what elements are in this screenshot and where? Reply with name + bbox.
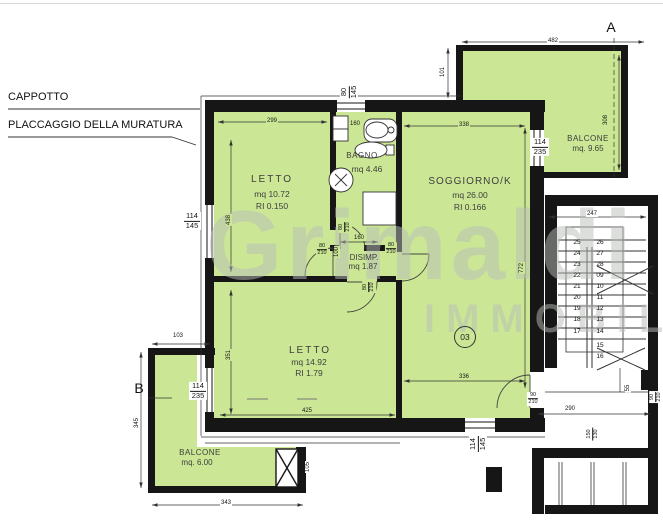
dim-336: 336: [458, 374, 470, 380]
dim-101: 101: [440, 66, 446, 78]
room-letto1-ri: RI 0.150: [256, 202, 288, 211]
room-soggiorno-ri: RI 0.166: [454, 203, 486, 212]
stair-step-number: 13: [596, 317, 603, 324]
door-marker-80-210-letto2: 80 210: [362, 281, 376, 293]
room-balcone-b-name: BALCONE: [179, 449, 221, 457]
room-balcone-b-area: mq. 6.00: [181, 459, 212, 467]
dim-100: 100: [334, 246, 340, 258]
door-marker-80-210-bagno: 80 210: [338, 221, 352, 233]
unit-number-badge: 03: [454, 326, 476, 348]
stair-step-number: 11: [597, 295, 604, 302]
stair-step-number: 16: [596, 354, 603, 361]
stair-step-number: 17: [573, 329, 580, 336]
room-letto1-area: mq 10.72: [254, 190, 289, 199]
stair-step-number: 14: [596, 329, 603, 336]
dim-308: 308: [603, 114, 609, 126]
stair-step-number: 20: [573, 295, 580, 302]
dim-55: 55: [625, 384, 631, 393]
stair-step-number: 15: [596, 343, 603, 350]
stair-step-number: 18: [573, 317, 580, 324]
stair-step-number: 23: [573, 262, 580, 269]
stair-step-number: 21: [573, 284, 580, 291]
room-balcone-a-name: BALCONE: [567, 135, 609, 143]
stair-step-number: 09: [596, 273, 603, 280]
dim-299: 299: [266, 118, 278, 124]
dim-772: 772: [519, 262, 525, 274]
dim-247: 247: [586, 211, 598, 217]
stair-step-number: 26: [596, 240, 603, 247]
dim-345: 345: [134, 417, 140, 429]
room-bagno-area: mq 4.46: [352, 165, 383, 174]
stair-step-number: 22: [573, 273, 580, 280]
room-disimpegno-name: DISIMP.: [350, 254, 379, 262]
window-marker-114-145-bottom: 114 145: [469, 435, 487, 453]
dim-425: 425: [301, 408, 313, 414]
door-marker-90-210-entrance: 90 210: [527, 392, 539, 406]
stair-step-number: 25: [573, 240, 580, 247]
window-marker-114-235-right: 114 235: [531, 138, 549, 156]
dim-103: 103: [172, 333, 184, 339]
stair-step-number: 19: [573, 306, 580, 313]
stair-step-number: 12: [596, 306, 603, 313]
room-disimpegno-area: mq 1.87: [349, 263, 378, 271]
dim-105: 105: [305, 461, 311, 473]
room-soggiorno-name: SOGGIORNO/K: [428, 177, 511, 187]
note-placcaggio: PLACCAGGIO DELLA MURATURA: [8, 119, 183, 131]
room-bagno-name: BAGNO: [346, 152, 377, 160]
room-balcone-a-area: mq. 9.65: [572, 145, 603, 153]
pillar-hatched: [276, 449, 298, 487]
section-marker-a: A: [606, 20, 615, 34]
floor-plan: Grimaldi IMMOBILIARE CAPPOTTO PLACCAGGIO…: [0, 0, 663, 525]
stair-step-number: 27: [596, 251, 603, 258]
stair-step-number: 28: [596, 262, 603, 269]
door-marker-80-210-letto1: 80 210: [316, 243, 328, 257]
window-marker-80-145: 80 145: [340, 85, 358, 100]
dim-343: 343: [220, 500, 232, 506]
stair-step-number: 10: [596, 284, 603, 291]
dim-150-130: 150 130: [586, 426, 600, 441]
dim-160-tub: 160: [349, 121, 361, 127]
dim-338: 338: [458, 122, 470, 128]
dim-438: 438: [226, 214, 232, 226]
window-marker-114-235-left: 114 235: [189, 382, 207, 400]
window-marker-114-145-left: 114 145: [183, 212, 201, 230]
note-cappotto: CAPPOTTO: [8, 91, 68, 103]
room-letto2-area: mq 14.92: [291, 358, 326, 367]
section-marker-b: B: [134, 381, 143, 395]
dim-290: 290: [564, 406, 576, 412]
room-letto2-name: LETTO: [289, 346, 331, 356]
door-marker-80-210-soggiorno: 80 210: [385, 242, 397, 256]
door-marker-90-210-neighbor: 90 210: [649, 391, 663, 403]
room-soggiorno-area: mq 26.00: [452, 191, 487, 200]
stair-step-number: 24: [573, 251, 580, 258]
dim-160-disimp: 160: [353, 235, 365, 241]
room-letto2-ri: RI 1.79: [295, 369, 322, 378]
dim-482: 482: [547, 38, 559, 44]
room-letto1-name: LETTO: [251, 175, 293, 185]
dim-351: 351: [226, 349, 232, 361]
